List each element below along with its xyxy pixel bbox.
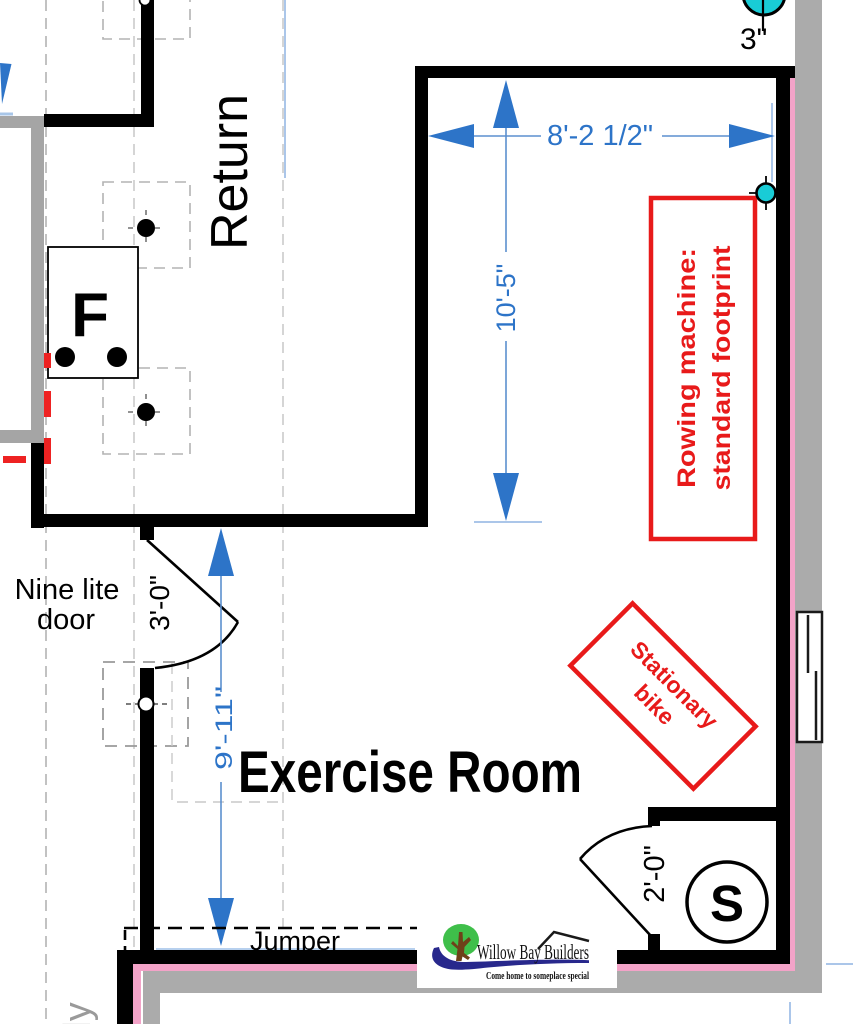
svg-text:Come home to someplace special: Come home to someplace special <box>486 971 589 982</box>
svg-text:8'-2 1/2": 8'-2 1/2" <box>547 120 653 152</box>
svg-text:standard footprint: standard footprint <box>708 245 736 491</box>
svg-text:F: F <box>71 281 109 350</box>
svg-text:ly: ly <box>57 1002 99 1024</box>
svg-text:Return: Return <box>201 94 259 250</box>
svg-text:Rowing machine:: Rowing machine: <box>673 248 701 488</box>
svg-text:2'-0": 2'-0" <box>639 845 671 903</box>
svg-text:Nine lite: Nine lite <box>15 574 120 606</box>
svg-text:10'-5": 10'-5" <box>491 264 521 333</box>
svg-text:Willow Bay Builders: Willow Bay Builders <box>477 940 589 964</box>
svg-text:3": 3" <box>740 23 767 56</box>
svg-text:S: S <box>710 875 744 932</box>
svg-text:Exercise Room: Exercise Room <box>238 740 582 805</box>
svg-text:Jumper: Jumper <box>250 926 340 956</box>
svg-text:9'-11": 9'-11" <box>211 686 238 770</box>
svg-text:3'-0": 3'-0" <box>144 575 175 631</box>
svg-text:door: door <box>37 604 95 636</box>
